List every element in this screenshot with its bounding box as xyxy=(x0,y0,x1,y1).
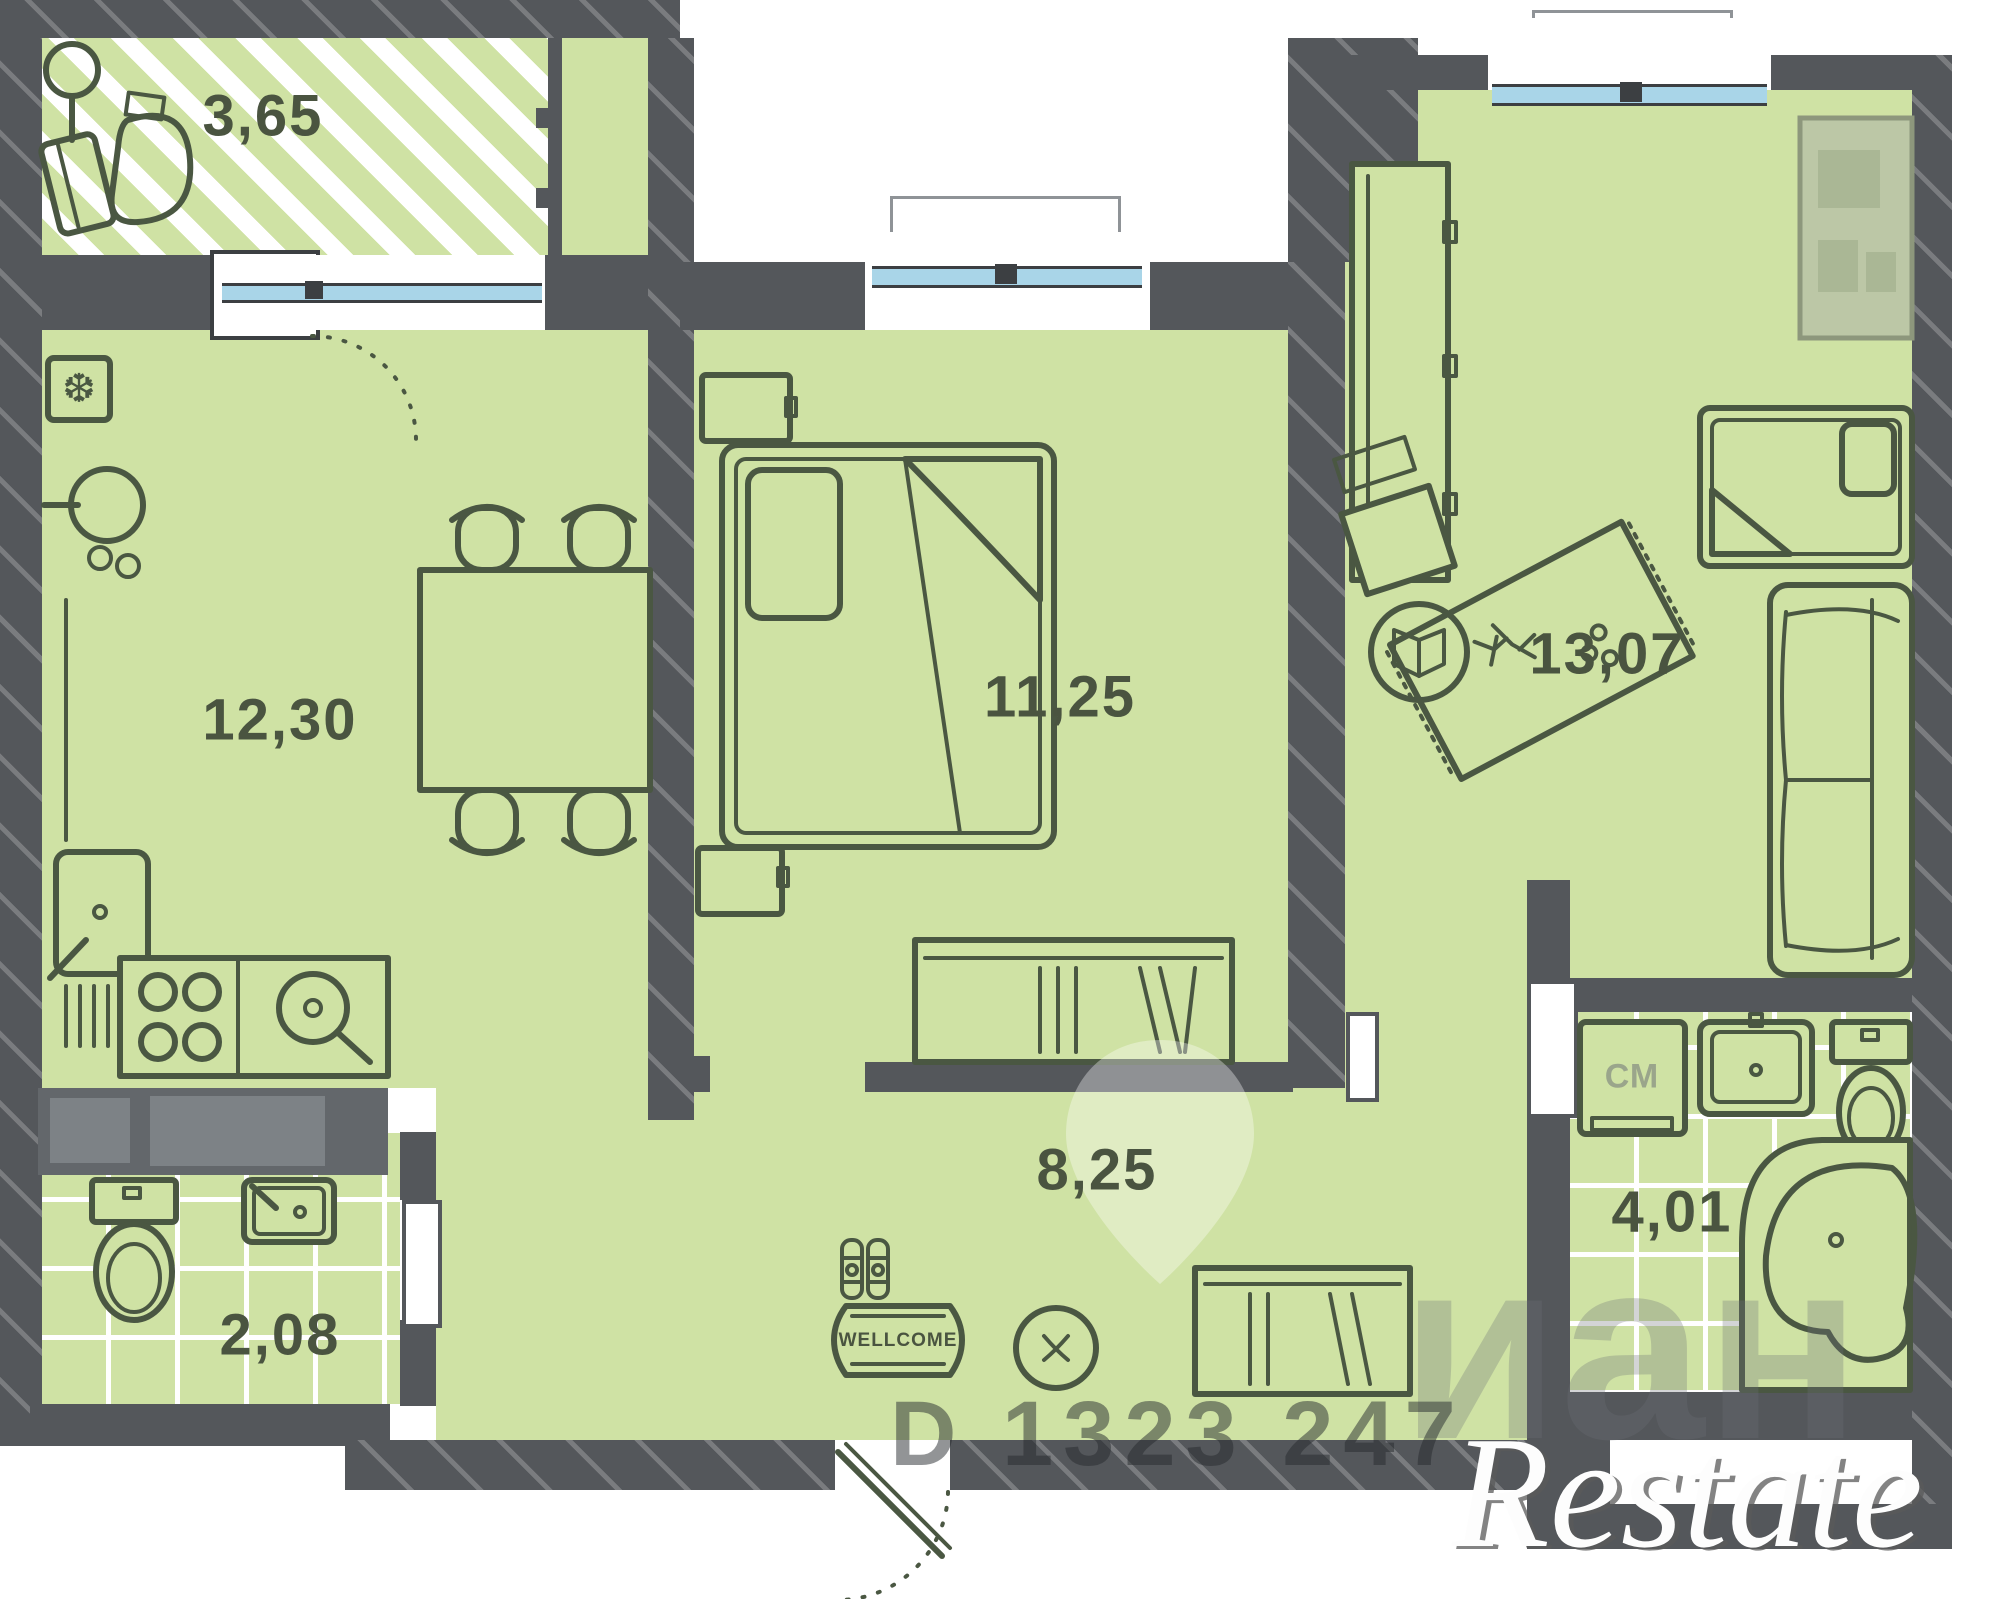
bath-sink-icon xyxy=(1700,1014,1812,1114)
dining-chair-icon xyxy=(452,507,522,570)
dining-chair-icon xyxy=(452,790,522,853)
dining-chair-icon xyxy=(564,507,634,570)
bath-toilet-icon xyxy=(1832,1022,1910,1156)
nightstand-icon xyxy=(702,375,796,441)
single-bed-icon xyxy=(1700,408,1912,566)
wc-toilet-icon xyxy=(92,1180,176,1320)
bedroom-area-label: 11,25 xyxy=(984,664,1136,731)
fridge-icon: ❆ xyxy=(48,358,110,420)
sofa-icon xyxy=(1770,585,1912,975)
living-closet-icon xyxy=(1800,118,1912,338)
peephole-cross-icon xyxy=(1016,1308,1096,1388)
dining-table-icon xyxy=(420,507,650,853)
hall-area-label: 8,25 xyxy=(1037,1137,1158,1204)
double-bed-icon xyxy=(722,445,1054,847)
doormat-label: WELLCOME xyxy=(839,1330,958,1352)
balcony-door-swing-arc xyxy=(312,336,416,440)
balcony-area-label: 3,65 xyxy=(203,83,324,150)
washing-machine-label: СМ xyxy=(1605,1058,1659,1097)
balcony-bench-icon xyxy=(40,133,116,236)
living-area-label: 13,07 xyxy=(1529,621,1684,688)
floor-plan: ❆ xyxy=(0,0,2000,1599)
wc-sink-icon xyxy=(244,1180,334,1242)
restate-watermark: Restate xyxy=(1452,1400,1923,1585)
hall-wardrobe-icon xyxy=(1195,1268,1410,1394)
wc-area-label: 2,08 xyxy=(220,1302,341,1369)
kitchen-area-label: 12,30 xyxy=(202,687,357,754)
dining-chair-icon xyxy=(564,790,634,853)
nightstand-icon xyxy=(698,848,788,914)
balcony-armchair-icon xyxy=(112,93,191,223)
kitchen-sink-icon xyxy=(44,469,143,577)
fridge-snowflake-glyph: ❆ xyxy=(62,367,96,411)
floor-lamp-icon xyxy=(46,44,98,140)
shoes-icon xyxy=(842,1240,888,1298)
listing-id-watermark: D 1323 247 xyxy=(890,1382,1466,1487)
